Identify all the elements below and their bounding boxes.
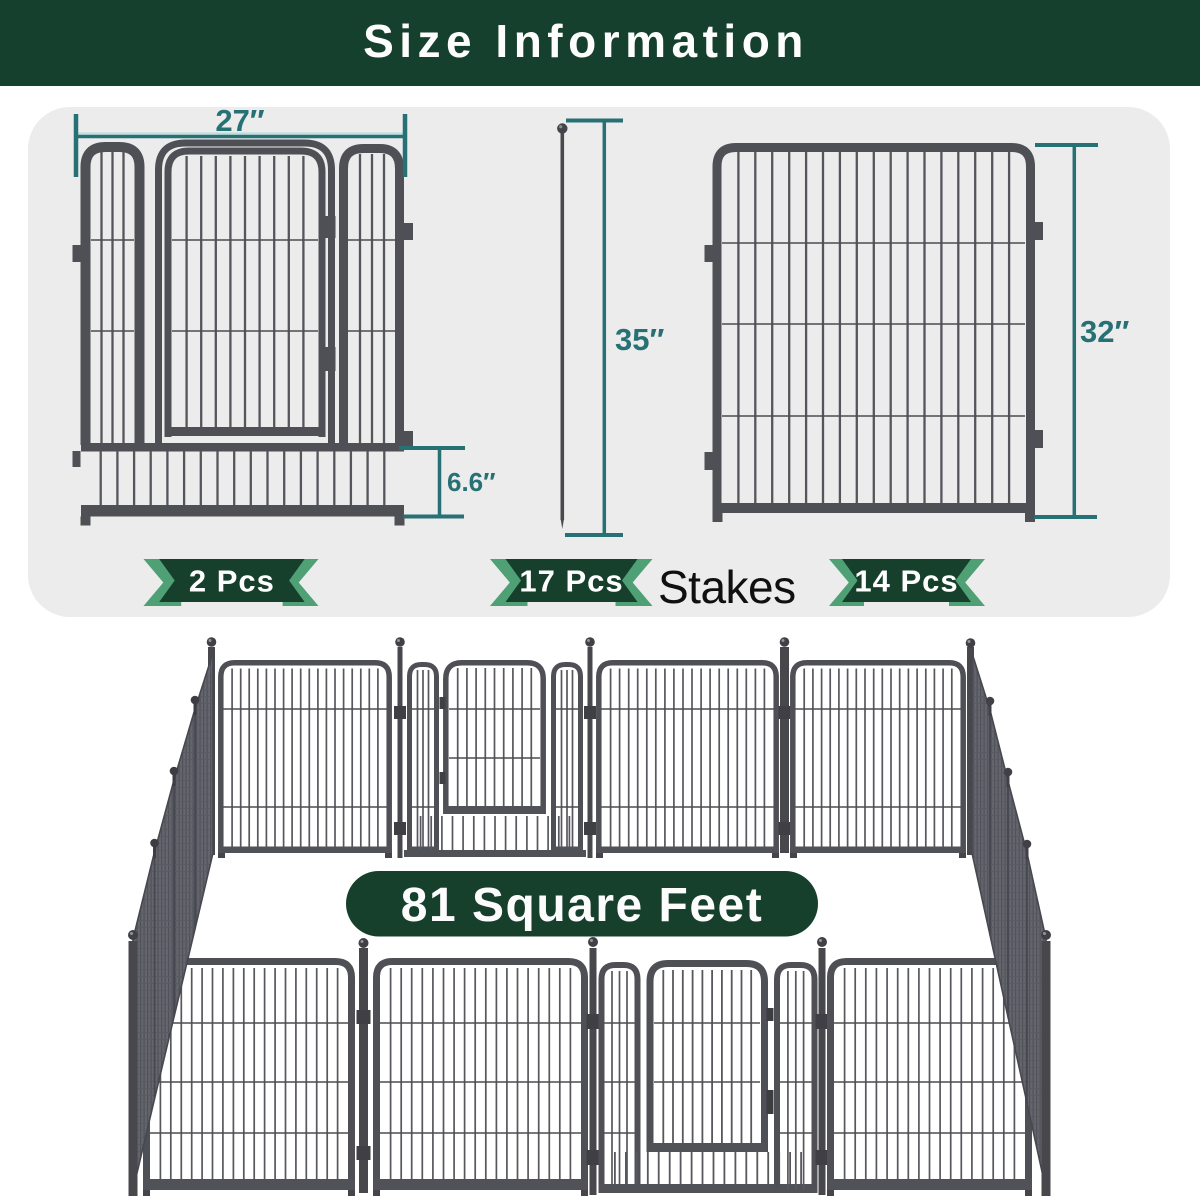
- svg-text:6.6″: 6.6″: [447, 467, 496, 497]
- svg-text:32″: 32″: [1080, 314, 1129, 349]
- svg-text:35″: 35″: [615, 322, 664, 357]
- svg-text:27″: 27″: [215, 103, 264, 138]
- svg-text:Stakes: Stakes: [658, 561, 796, 613]
- svg-text:14 Pcs: 14 Pcs: [854, 564, 958, 599]
- svg-text:17 Pcs: 17 Pcs: [519, 564, 623, 599]
- svg-text:Size Information: Size Information: [363, 15, 809, 67]
- svg-text:2 Pcs: 2 Pcs: [189, 564, 275, 599]
- svg-text:81 Square Feet: 81 Square Feet: [401, 879, 763, 932]
